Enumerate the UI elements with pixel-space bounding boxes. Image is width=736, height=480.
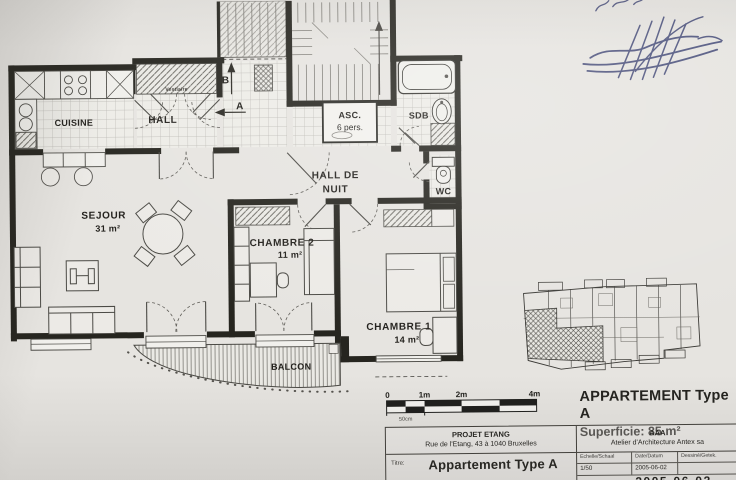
title-block: PROJET ETANG Rue de l'Etang, 43 à 1040 B… [385, 423, 736, 480]
scale-sub-label: 50cm [399, 417, 413, 423]
project-address: Rue de l'Etang, 43 à 1040 Bruxelles [425, 440, 537, 451]
scale-tick-0: 0 [385, 391, 390, 400]
balcony [128, 343, 348, 393]
dining-set [134, 200, 195, 266]
apartment-type-title: APPARTEMENT Type A [579, 387, 736, 423]
drawing-sheet: ASC. 6 pers. [0, 0, 736, 480]
sofas [14, 246, 115, 334]
label-sejour: SEJOUR [81, 210, 126, 221]
marker-b: B [222, 75, 229, 86]
titre-value: Appartement Type A [412, 456, 574, 473]
scale-tick-2m: 2m [456, 390, 468, 399]
architect-cell: AAA Atelier d'Architecture Antex sa [577, 424, 736, 452]
area-sejour: 31 m² [95, 223, 120, 233]
washbasin [432, 99, 451, 124]
marker-a: A [236, 101, 243, 112]
bathtub [398, 60, 455, 94]
label-balcon: BALCON [271, 362, 311, 372]
label-chambre1: CHAMBRE 1 [366, 321, 431, 333]
meta-subgrid: Echelle/Schaal Date/Datum Dessiné/Getek.… [577, 451, 736, 480]
clipped-footer-row: 2005-06-02 [577, 474, 736, 480]
label-hall-de-nuit-1: HALL DE [312, 170, 359, 181]
label-vestiaire: Vestiaire [165, 87, 187, 93]
key-plan [523, 278, 700, 371]
title-block-row2: Titre: Appartement Type A Echelle/Schaal… [386, 451, 736, 480]
clipped-footer-text: 2005-06-02 [635, 475, 712, 480]
label-hall: HALL [148, 115, 177, 126]
project-cell: PROJET ETANG Rue de l'Etang, 43 à 1040 B… [386, 426, 577, 454]
label-chambre2: CHAMBRE 2 [250, 238, 315, 250]
scale-tick-1m: 1m [419, 390, 431, 399]
date-header: Date/Datum [632, 452, 678, 462]
scale-value: 1/50 [577, 463, 632, 475]
area-chambre2: 11 m² [278, 250, 303, 260]
stair-opening-line [222, 59, 286, 60]
label-hall-de-nuit-2: NUIT [323, 184, 349, 195]
scale-bar: 0 1m 2m 4m 50cm [385, 389, 540, 422]
label-wc: WC [436, 186, 452, 196]
staircase-main [292, 2, 389, 101]
area-chambre1: 14 m² [394, 335, 419, 345]
label-sdb: SDB [409, 110, 429, 120]
firm-short: AAA [649, 428, 665, 438]
pendant-lamps [41, 168, 92, 186]
drawn-value [678, 462, 736, 474]
label-cuisine: CUISINE [55, 118, 94, 128]
titre-cell: Titre: Appartement Type A [386, 453, 577, 480]
elevator-capacity: 6 pers. [337, 122, 363, 132]
scale-tick-4m: 4m [529, 389, 541, 398]
firm-name: Atelier d'Architecture Antex sa [611, 438, 704, 448]
titre-label: Titre: [391, 461, 405, 467]
floor-plan-photo: ASC. 6 pers. [0, 0, 736, 480]
title-block-row1: PROJET ETANG Rue de l'Etang, 43 à 1040 B… [386, 424, 736, 454]
elevator-label: ASC. [338, 110, 361, 120]
drawn-header: Dessiné/Getek. [678, 451, 736, 462]
signature [583, 0, 723, 80]
elevator: ASC. 6 pers. [323, 102, 377, 143]
date-value: 2005-06-02 [632, 463, 678, 474]
project-name: PROJET ETANG [452, 430, 510, 441]
staircase-small [220, 1, 287, 58]
scale-header: Echelle/Schaal [577, 452, 632, 463]
